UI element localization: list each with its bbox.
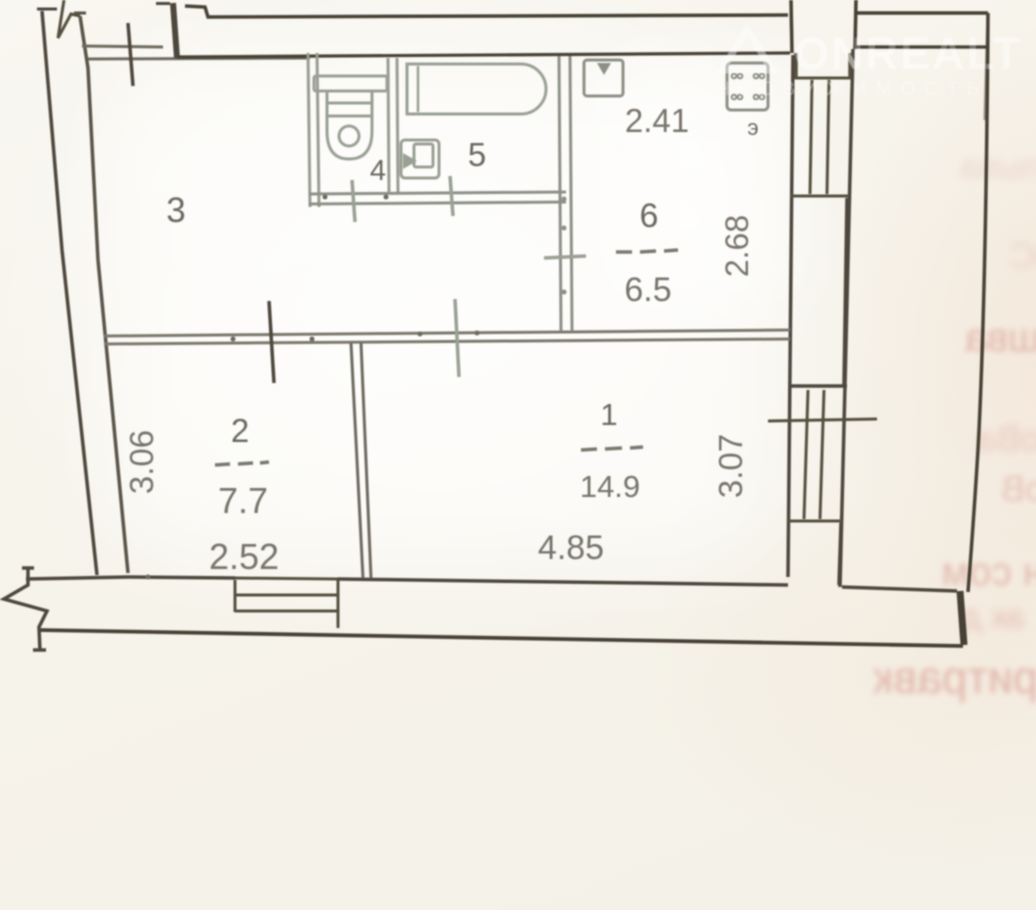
svg-text:3.06: 3.06: [123, 430, 160, 494]
svg-text:4: 4: [370, 155, 386, 187]
svg-text:14.9: 14.9: [580, 469, 640, 504]
svg-text:2.41: 2.41: [625, 102, 689, 139]
svg-text:3.07: 3.07: [712, 434, 749, 498]
svg-text:3: 3: [166, 191, 185, 230]
svg-text:НЕДВИЖИМОСТЬ: НЕДВИЖИМОСТЬ: [716, 79, 989, 100]
svg-text:э: э: [747, 115, 758, 140]
svg-text:2.68: 2.68: [719, 215, 755, 277]
svg-text:1: 1: [600, 397, 617, 432]
svg-text:5: 5: [468, 136, 486, 173]
svg-text:7.7: 7.7: [218, 480, 268, 521]
svg-text:2.52: 2.52: [209, 536, 279, 577]
svg-text:6.5: 6.5: [624, 271, 671, 309]
svg-text:6: 6: [640, 197, 659, 235]
svg-text:4.85: 4.85: [538, 529, 604, 567]
svg-text:2: 2: [231, 412, 249, 449]
